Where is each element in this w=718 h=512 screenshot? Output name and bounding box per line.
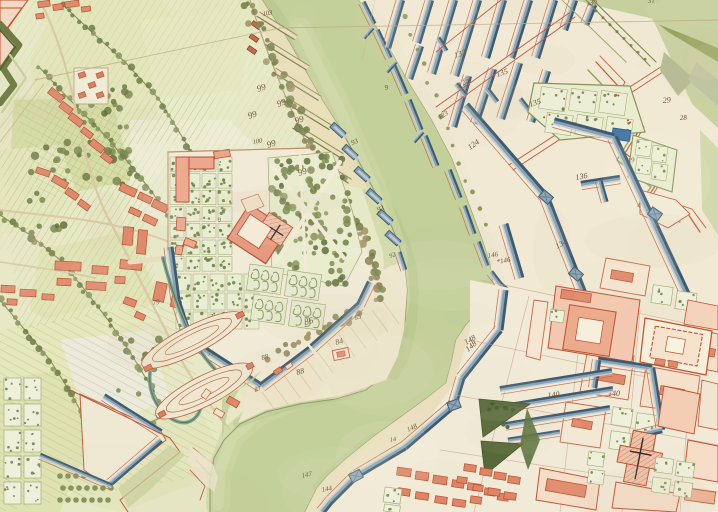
svg-text:28: 28 <box>679 113 687 122</box>
svg-text:140: 140 <box>547 389 560 400</box>
svg-text:71: 71 <box>207 349 215 358</box>
svg-text:30: 30 <box>588 0 597 7</box>
